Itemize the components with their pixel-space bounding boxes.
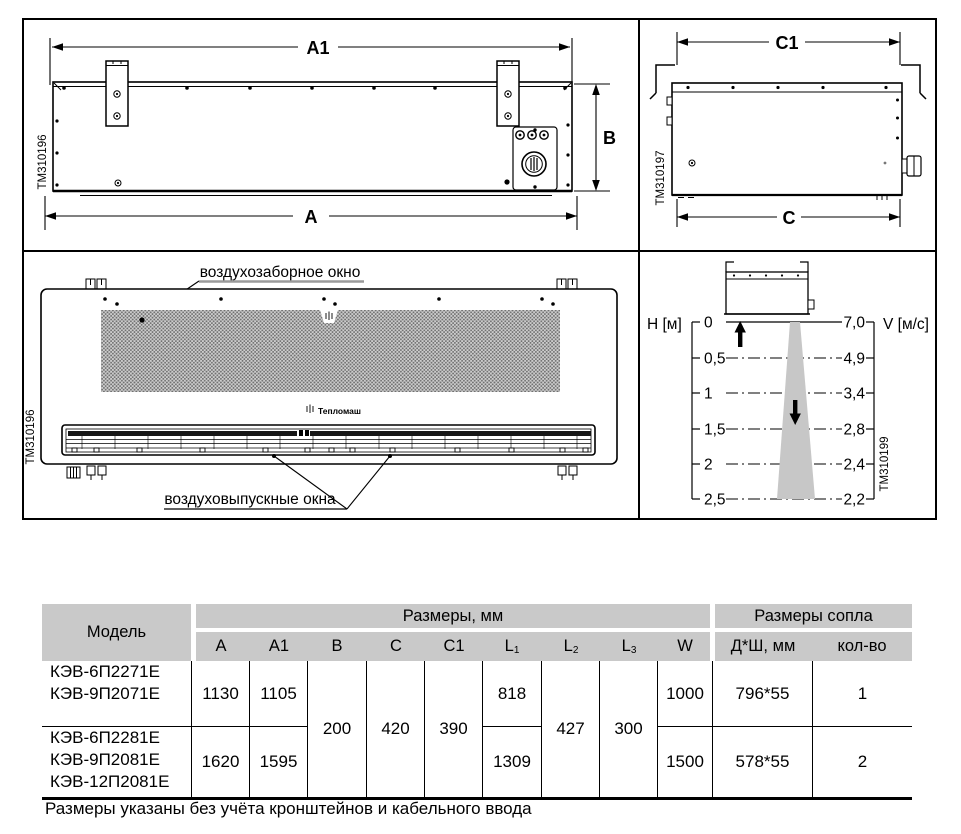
h-axis bbox=[692, 322, 700, 499]
bottom-bracket bbox=[558, 466, 577, 480]
cell-models-row1: КЭВ-6П2271Е КЭВ-9П2071Е bbox=[42, 661, 192, 727]
cell-l3-shared: 300 bbox=[600, 661, 658, 797]
col-b: B bbox=[331, 632, 342, 661]
dim-label-a: A bbox=[305, 207, 318, 227]
h-tick-4: 2 bbox=[704, 457, 713, 474]
cell-w-row2: 1500 bbox=[658, 727, 713, 797]
side-view-panel: C1 bbox=[640, 20, 935, 250]
v-tick-0: 7,0 bbox=[843, 315, 865, 332]
drawing-code-label: TM310196 bbox=[37, 135, 49, 190]
v-tick-2: 3,4 bbox=[843, 386, 865, 403]
up-arrow-icon bbox=[735, 321, 746, 347]
drawings-grid: A1 bbox=[22, 18, 937, 520]
h-tick-5: 2,5 bbox=[704, 492, 726, 509]
footnote: Размеры указаны без учёта кронштейнов и … bbox=[45, 799, 532, 819]
front-view-panel: A1 bbox=[24, 20, 638, 250]
cell-a-row2: 1620 bbox=[192, 727, 250, 797]
cell-nozzle-qty-row1: 1 bbox=[813, 661, 912, 727]
outlet-windows-label: воздуховыпускные окна bbox=[164, 491, 336, 508]
outlet-grille bbox=[62, 425, 595, 455]
drawing-code-label: TM310196 bbox=[25, 410, 37, 465]
cable-gland bbox=[902, 156, 921, 176]
v-tick-1: 4,9 bbox=[843, 351, 865, 368]
v-axis-label: V [м/с] bbox=[883, 316, 929, 333]
col-w: W bbox=[677, 632, 693, 661]
table-group-nozzle: Размеры сопла bbox=[715, 604, 912, 628]
cell-l2-shared: 427 bbox=[542, 661, 600, 797]
cell-c1-shared: 390 bbox=[425, 661, 483, 797]
v-axis bbox=[866, 322, 874, 499]
dim-label-c1: C1 bbox=[775, 33, 798, 53]
table-header-model: Модель bbox=[42, 604, 191, 661]
cell-models-row2: КЭВ-6П2281Е КЭВ-9П2081Е КЭВ-12П2081Е bbox=[42, 727, 192, 797]
dim-label-b: B bbox=[603, 128, 616, 148]
cell-w-row1: 1000 bbox=[658, 661, 713, 727]
drawing-code-label: TM310199 bbox=[879, 437, 891, 492]
cell-a-row1: 1130 bbox=[192, 661, 250, 727]
cell-a1-row2: 1595 bbox=[250, 727, 308, 797]
col-a: A bbox=[215, 632, 226, 661]
cell-l1-row2: 1309 bbox=[483, 727, 542, 797]
dimensions-table: Модель Размеры, мм Размеры сопла A A1 B … bbox=[42, 604, 912, 800]
dim-label-a1: A1 bbox=[306, 38, 329, 58]
dim-label-c: C bbox=[783, 208, 796, 228]
airflow-chart-panel: Н [м] V [м/с] 0 0,5 bbox=[640, 252, 935, 518]
h-tick-0: 0 bbox=[704, 315, 713, 332]
mounting-bracket bbox=[497, 61, 519, 126]
v-tick-3: 2,8 bbox=[843, 422, 865, 439]
col-l1: L1 bbox=[505, 632, 520, 661]
col-l2: L2 bbox=[564, 632, 579, 661]
intake-window-label: воздухозаборное окно bbox=[200, 264, 361, 281]
cell-b-shared: 200 bbox=[308, 661, 367, 797]
h-tick-3: 1,5 bbox=[704, 422, 726, 439]
datasheet-page: A1 bbox=[0, 0, 961, 834]
table-subheader-dimensions: A A1 B C C1 L1 L2 L3 W bbox=[196, 632, 710, 661]
v-tick-5: 2,2 bbox=[843, 492, 865, 509]
table-group-dimensions: Размеры, мм bbox=[196, 604, 710, 628]
table-header: Модель Размеры, мм Размеры сопла A A1 B … bbox=[42, 604, 912, 661]
h-tick-2: 1 bbox=[704, 386, 713, 403]
col-c1: C1 bbox=[443, 632, 464, 661]
col-l3: L3 bbox=[622, 632, 637, 661]
top-bracket bbox=[557, 279, 577, 289]
col-c: C bbox=[390, 632, 402, 661]
h-tick-1: 0,5 bbox=[704, 351, 726, 368]
cell-nozzle-qty-row2: 2 bbox=[813, 727, 912, 797]
ceiling-hook bbox=[901, 65, 926, 99]
h-axis-label: Н [м] bbox=[647, 316, 682, 333]
table-body: КЭВ-6П2271Е КЭВ-9П2071Е 1130 1105 200 42… bbox=[42, 661, 912, 800]
top-bracket bbox=[86, 279, 106, 289]
cell-nozzle-size-row1: 796*55 bbox=[713, 661, 813, 727]
svg-text:Тепломаш: Тепломаш bbox=[318, 406, 361, 416]
col-nozzle-size: Д*Ш, мм bbox=[731, 632, 796, 661]
bottom-view-panel: воздухозаборное окно bbox=[24, 252, 638, 518]
drawing-code-label: TM310197 bbox=[655, 151, 667, 206]
col-a1: A1 bbox=[269, 632, 289, 661]
cell-c-shared: 420 bbox=[367, 661, 425, 797]
col-nozzle-qty: кол-во bbox=[837, 632, 886, 661]
mini-unit-drawing bbox=[724, 262, 814, 314]
table-subheader-nozzle: Д*Ш, мм кол-во bbox=[715, 632, 912, 661]
cell-l1-row1: 818 bbox=[483, 661, 542, 727]
v-tick-4: 2,4 bbox=[843, 457, 865, 474]
mounting-bracket bbox=[106, 61, 128, 126]
cell-a1-row1: 1105 bbox=[250, 661, 308, 727]
cell-nozzle-size-row2: 578*55 bbox=[713, 727, 813, 797]
bottom-bracket bbox=[67, 466, 106, 480]
